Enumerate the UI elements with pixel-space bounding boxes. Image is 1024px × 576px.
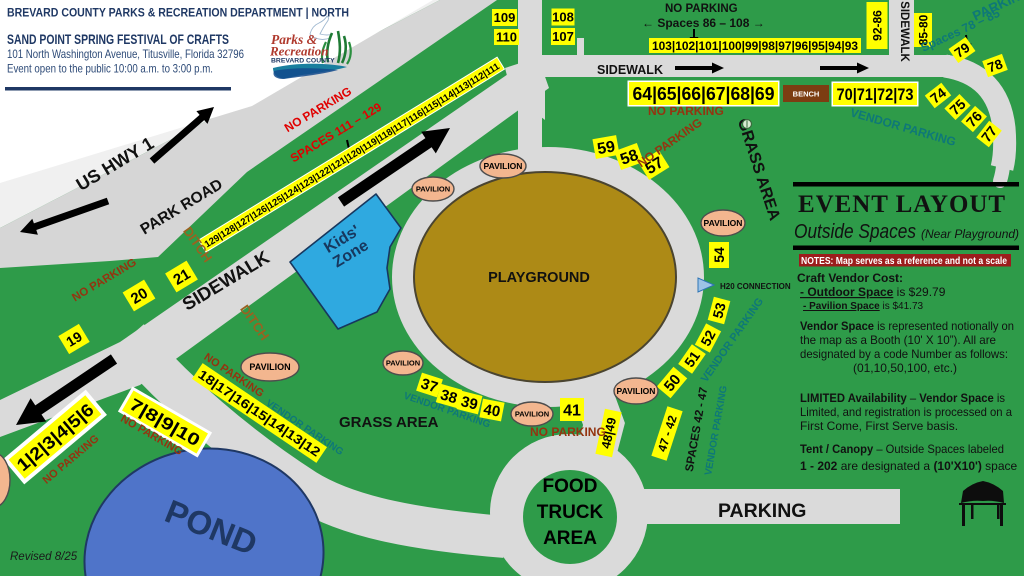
svg-text:H20 CONNECTION: H20 CONNECTION (720, 282, 791, 291)
svg-text:PAVILION: PAVILION (617, 386, 656, 396)
svg-text:SIDEWALK: SIDEWALK (898, 1, 910, 62)
svg-text:108: 108 (552, 10, 574, 25)
svg-text:59: 59 (596, 138, 617, 158)
svg-text:1 - 202 are designated a (10'X: 1 - 202 are designated a (10'X10') space (800, 459, 1018, 473)
svg-text:PAVILION: PAVILION (704, 218, 743, 228)
svg-text:BENCH: BENCH (793, 90, 820, 99)
svg-text:EVENT LAYOUT: EVENT LAYOUT (798, 189, 1006, 218)
svg-text:- Outdoor Space is $29.79: - Outdoor Space is $29.79 (800, 285, 946, 299)
svg-text:Event open to the public 10:00: Event open to the public 10:00 a.m. to 3… (7, 62, 213, 76)
svg-text:Vendor Space is represented no: Vendor Space is represented notionally o… (800, 319, 1014, 333)
svg-text:PAVILION: PAVILION (515, 410, 549, 419)
svg-text:PLAYGROUND: PLAYGROUND (488, 270, 590, 286)
svg-text:SIDEWALK: SIDEWALK (597, 63, 663, 77)
svg-text:LIMITED Availability – Vendor: LIMITED Availability – Vendor Space is (800, 391, 1005, 405)
svg-text:NOTES: Map serves as a referen: NOTES: Map serves as a reference and not… (801, 256, 1007, 267)
svg-text:PAVILION: PAVILION (484, 161, 523, 171)
svg-text:← Spaces 86 – 108 →: ← Spaces 86 – 108 → (642, 16, 765, 30)
svg-text:- Pavilion Space is $41.73: - Pavilion Space is $41.73 (803, 301, 924, 312)
svg-text:103|102|101|100|99|98|97|96|95: 103|102|101|100|99|98|97|96|95|94|93 (652, 41, 858, 53)
svg-text:BREVARD COUNTY PARKS & RECREAT: BREVARD COUNTY PARKS & RECREATION DEPART… (7, 6, 349, 20)
svg-text:designated by a code Number as: designated by a code Number as follows: (800, 347, 1008, 361)
svg-text:GRASS AREA: GRASS AREA (339, 414, 439, 431)
svg-text:NO PARKING: NO PARKING (648, 104, 724, 118)
svg-text:70|71|72|73: 70|71|72|73 (837, 85, 914, 104)
svg-text:107: 107 (552, 29, 574, 44)
svg-text:92-86: 92-86 (870, 10, 884, 41)
svg-text:Recreation: Recreation (269, 44, 329, 59)
svg-text:BREVARD COUNTY: BREVARD COUNTY (271, 58, 335, 65)
svg-text:First Come, First Serve basis.: First Come, First Serve basis. (800, 419, 958, 433)
svg-text:PAVILION: PAVILION (386, 359, 420, 368)
svg-text:TRUCK: TRUCK (537, 502, 604, 523)
svg-text:Revised 8/25: Revised 8/25 (10, 551, 78, 563)
svg-text:Outside Spaces: Outside Spaces (794, 221, 916, 243)
svg-text:41: 41 (563, 402, 581, 419)
svg-text:FOOD: FOOD (543, 476, 598, 497)
svg-text:PAVILION: PAVILION (416, 185, 450, 194)
svg-text:PARKING: PARKING (718, 500, 806, 522)
svg-text:101 North Washington Avenue, T: 101 North Washington Avenue, Titusville,… (7, 47, 244, 61)
svg-text:Tent / Canopy – Outside Spaces: Tent / Canopy – Outside Spaces labeled (800, 442, 1004, 456)
svg-text:PAVILION: PAVILION (249, 362, 290, 372)
svg-text:(Near Playground): (Near Playground) (921, 227, 1019, 241)
svg-text:109: 109 (494, 10, 516, 25)
svg-text:Craft Vendor Cost:: Craft Vendor Cost: (797, 271, 903, 285)
svg-text:NO PARKING: NO PARKING (530, 425, 606, 439)
svg-text:(01,10,50,100, etc.): (01,10,50,100, etc.) (853, 361, 957, 375)
svg-text:Limited, and registration is p: Limited, and registration is processed o… (800, 405, 1012, 419)
svg-text:the map as a Booth (10' X 10”): the map as a Booth (10' X 10”). All are (800, 333, 996, 347)
svg-text:110: 110 (496, 30, 517, 45)
svg-text:NO PARKING: NO PARKING (665, 3, 738, 15)
svg-text:54: 54 (711, 247, 727, 263)
svg-text:SAND POINT SPRING FESTIVAL OF: SAND POINT SPRING FESTIVAL OF CRAFTS (7, 31, 229, 47)
svg-text:64|65|66|67|68|69: 64|65|66|67|68|69 (633, 84, 775, 104)
svg-text:AREA: AREA (543, 528, 597, 549)
